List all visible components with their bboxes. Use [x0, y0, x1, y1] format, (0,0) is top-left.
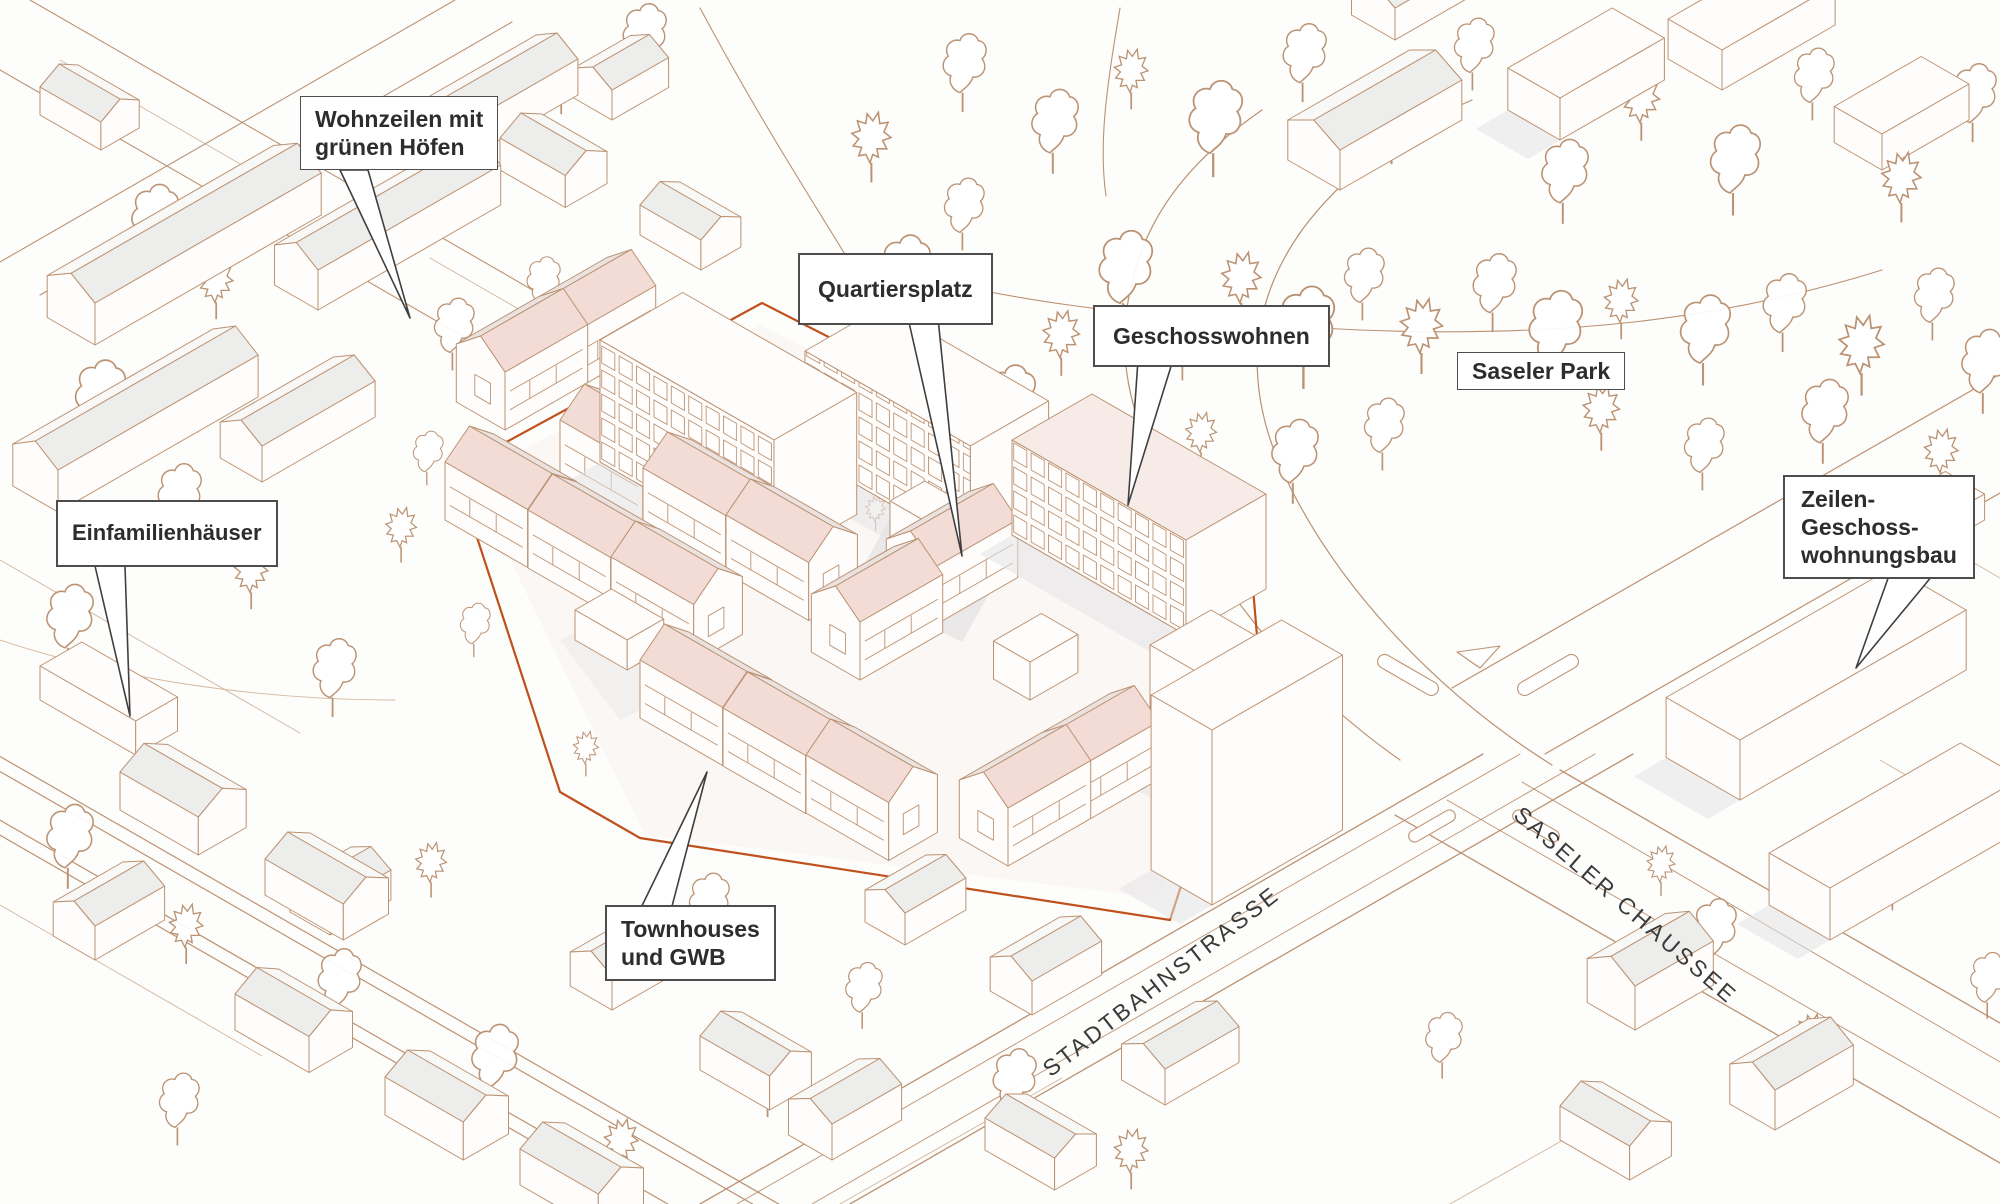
axonometric-site-diagram: Wohnzeilen mit grünen Höfen Quartierspla… [0, 0, 2000, 1204]
label-einfamilienhaeuser: Einfamilienhäuser [56, 500, 278, 567]
site-plan-drawing [0, 0, 2000, 1204]
label-zeilen-geschosswohnungsbau: Zeilen- Geschoss- wohnungsbau [1783, 475, 1975, 579]
label-wohnzeilen: Wohnzeilen mit grünen Höfen [300, 96, 498, 170]
label-geschosswohnen: Geschosswohnen [1093, 305, 1330, 367]
label-saseler-park: Saseler Park [1457, 352, 1625, 390]
label-wohnzeilen-line1: Wohnzeilen mit [315, 106, 483, 132]
label-wohnzeilen-line2: grünen Höfen [315, 134, 465, 160]
label-quartiersplatz: Quartiersplatz [798, 253, 993, 325]
label-townhouses-gwb: Townhouses und GWB [605, 905, 776, 981]
